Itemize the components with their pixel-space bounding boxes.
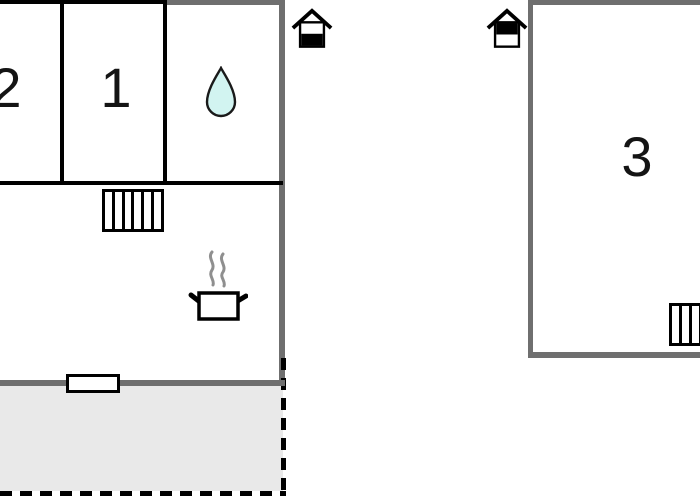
room-2-label: 2 bbox=[0, 60, 22, 116]
door-window-marker bbox=[66, 374, 120, 393]
steam-line bbox=[210, 252, 213, 285]
right-building-bottom-exterior-wall bbox=[528, 352, 700, 358]
left-building-top-exterior-wall bbox=[163, 0, 285, 5]
room-1-label: 1 bbox=[100, 60, 131, 116]
terrace-dashed-border-right bbox=[281, 358, 286, 496]
left-building-bottom-exterior-wall bbox=[0, 380, 285, 386]
wall-between-room2-room1 bbox=[60, 0, 64, 185]
right-building-top-exterior-wall bbox=[528, 0, 700, 5]
terrace-area bbox=[0, 386, 283, 491]
wall-between-room1-bathroom bbox=[163, 0, 167, 185]
entrance-house-icon bbox=[486, 8, 528, 50]
cooking-pot-icon bbox=[182, 243, 248, 321]
left-building-middle-wall bbox=[0, 181, 283, 185]
entrance-house-icon bbox=[291, 8, 333, 50]
stairs-icon bbox=[102, 189, 164, 232]
left-building-top-interior-wall bbox=[0, 0, 167, 4]
pot-body bbox=[199, 293, 238, 319]
floor-plan-canvas: 2 1 bbox=[0, 0, 700, 500]
steam-line bbox=[221, 254, 224, 286]
stairs-icon bbox=[669, 303, 700, 346]
terrace-dashed-border-bottom bbox=[0, 491, 286, 496]
right-building-left-exterior-wall bbox=[528, 0, 533, 358]
left-building-right-exterior-wall bbox=[279, 0, 285, 381]
room-3-label: 3 bbox=[621, 129, 652, 185]
water-drop-icon bbox=[205, 66, 237, 118]
